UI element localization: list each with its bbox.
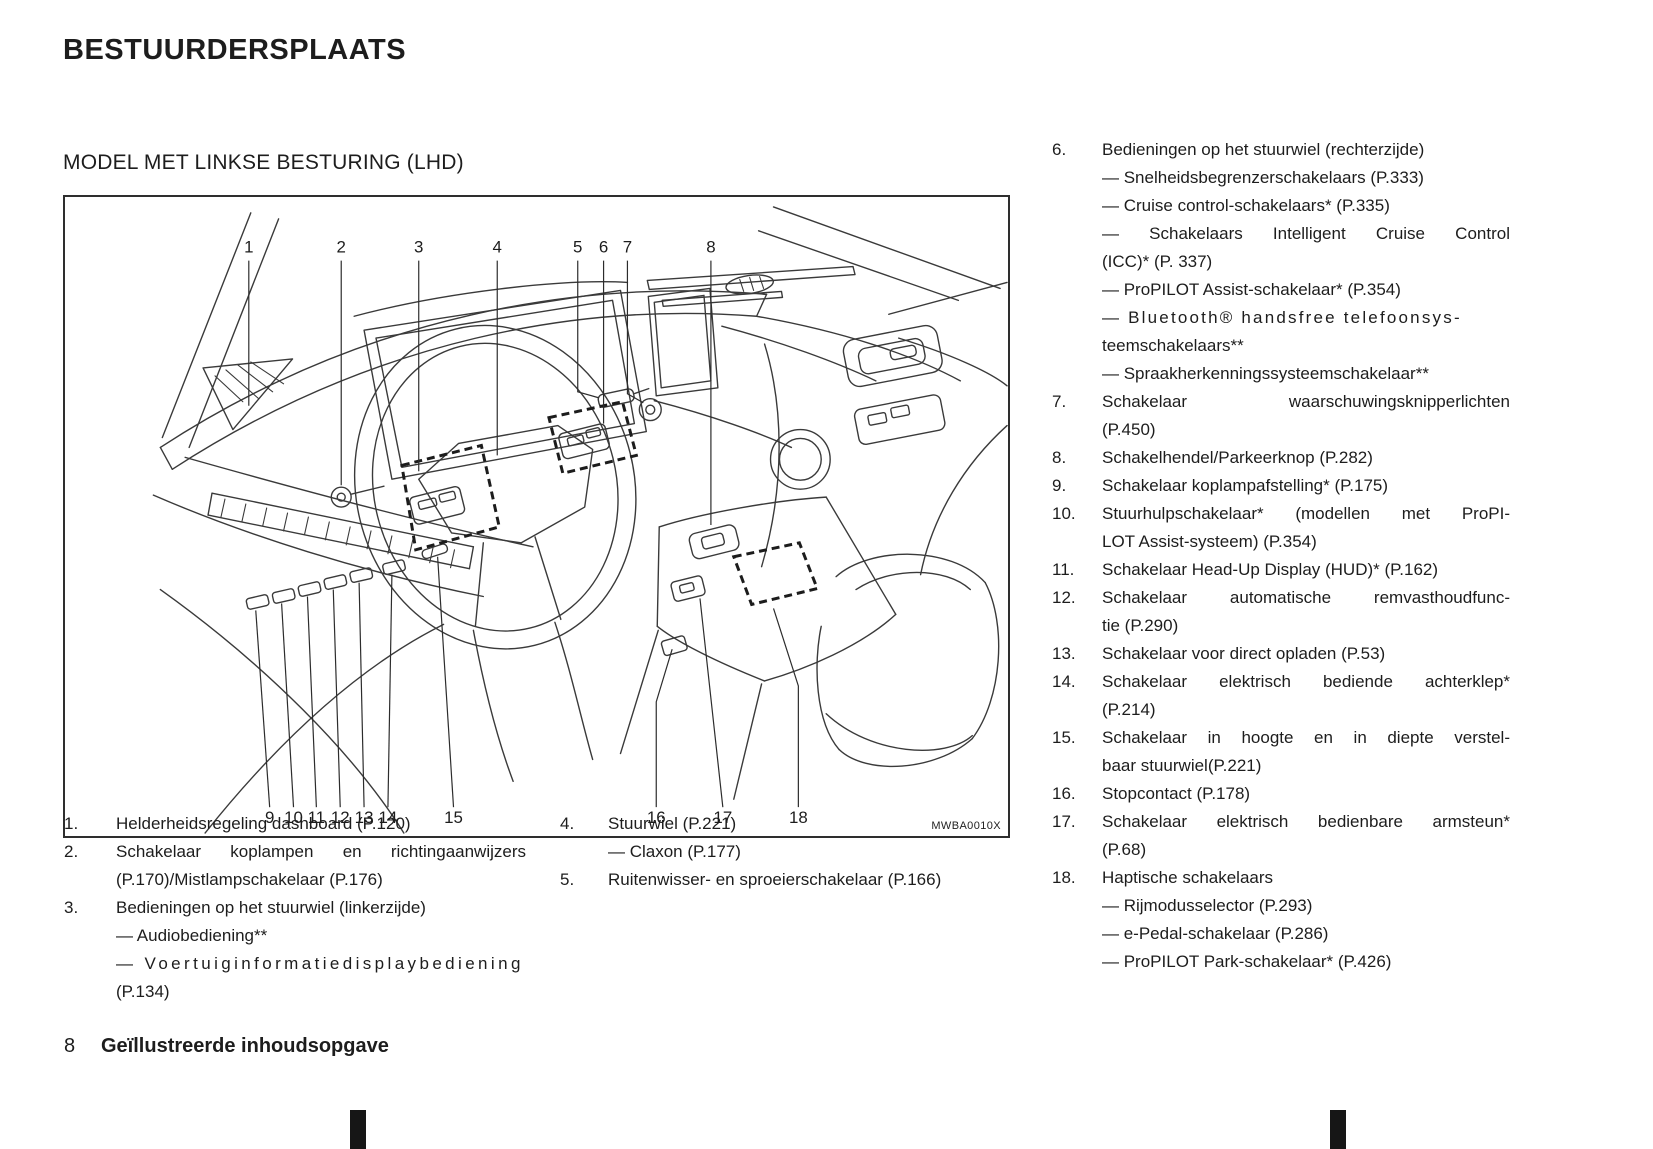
legend-line: — Schakelaars Intelligent Cruise Control [1102, 220, 1510, 248]
legend-line: — Claxon (P.177) [608, 838, 1010, 866]
legend-line: Schakelaar automatische remvasthoudfunc- [1102, 584, 1510, 612]
legend-item-7: 7. Schakelaar waarschuwingsknipperlichte… [1052, 388, 1510, 444]
svg-text:1: 1 [244, 238, 253, 257]
legend-item-16: 16. Stopcontact (P.178) [1052, 780, 1510, 808]
page-number: 8 [64, 1035, 101, 1058]
instrument-cluster [354, 282, 876, 479]
legend-line: — Cruise control-schakelaars* (P.335) [1102, 192, 1510, 220]
legend-item-11: 11. Schakelaar Head-Up Display (HUD)* (P… [1052, 556, 1510, 584]
svg-text:3: 3 [414, 238, 423, 257]
legend-item-number: 8. [1052, 444, 1102, 472]
dash-button-row [246, 559, 406, 609]
legend-item-number: 12. [1052, 584, 1102, 640]
legend-line: Schakelaar Head-Up Display (HUD)* (P.162… [1102, 556, 1510, 584]
figure-subtitle: MODEL MET LINKSE BESTURING (LHD) [63, 151, 464, 175]
legend-item-9: 9. Schakelaar koplampafstelling* (P.175) [1052, 472, 1510, 500]
legend-line: Schakelaar voor direct opladen (P.53) [1102, 640, 1510, 668]
legend-line: Schakelhendel/Parkeerknop (P.282) [1102, 444, 1510, 472]
legend-item-number: 11. [1052, 556, 1102, 584]
legend-line: (P.450) [1102, 416, 1510, 444]
legend-line: Bedieningen op het stuurwiel (linkerzijd… [116, 894, 526, 922]
legend-item-number: 9. [1052, 472, 1102, 500]
legend-item-5: 5. Ruitenwisser- en sproeierschakelaar (… [560, 866, 1010, 894]
legend-item-number: 5. [560, 866, 608, 894]
legend-item-2: 2. Schakelaar koplampen en richtingaanwi… [64, 838, 526, 894]
legend-line: (P.214) [1102, 696, 1510, 724]
gear-shifter [688, 524, 741, 561]
legend-line: Haptische schakelaars [1102, 864, 1510, 892]
legend-item-13: 13. Schakelaar voor direct opladen (P.53… [1052, 640, 1510, 668]
chapter-title: Geïllustreerde inhoudsopgave [101, 1035, 389, 1057]
legend-item-number: 4. [560, 810, 608, 866]
legend-line: — ProPILOT Park-schakelaar* (P.426) [1102, 948, 1510, 976]
legend-item-number: 13. [1052, 640, 1102, 668]
legend-line: Schakelaar elektrisch bediende achterkle… [1102, 668, 1510, 696]
legend-line: — Rijmodusselector (P.293) [1102, 892, 1510, 920]
callout-15: 15 [438, 557, 463, 827]
legend-item-number: 6. [1052, 136, 1102, 388]
legend-column-right: 6. Bedieningen op het stuurwiel (rechter… [1052, 136, 1510, 976]
legend-line: Helderheidsregeling dashboard (P.120) [116, 810, 526, 838]
legend-item-10: 10. Stuurhulpschakelaar* (modellen met P… [1052, 500, 1510, 556]
legend-column-middle: 4. Stuurwiel (P.221) — Claxon (P.177) 5.… [560, 810, 1010, 894]
callout-9: 9 [256, 610, 275, 827]
callout-18: 18 [774, 608, 808, 827]
legend-line: tie (P.290) [1102, 612, 1510, 640]
svg-text:2: 2 [337, 238, 346, 257]
callouts-top: 1 2 3 4 5 6 7 8 [244, 238, 715, 525]
callout-4: 4 [493, 238, 502, 456]
callout-12: 12 [331, 590, 350, 828]
legend-line: — ProPILOT Assist-schakelaar* (P.354) [1102, 276, 1510, 304]
callout-11: 11 [307, 596, 325, 827]
page-title: BESTUURDERSPLAATS [63, 34, 406, 67]
legend-line: Stopcontact (P.178) [1102, 780, 1510, 808]
legend-item-number: 14. [1052, 668, 1102, 724]
callout-17: 17 [700, 598, 732, 827]
legend-item-1: 1. Helderheidsregeling dashboard (P.120) [64, 810, 526, 838]
callout-10: 10 [282, 603, 303, 827]
svg-text:5: 5 [573, 238, 582, 257]
legend-item-number: 10. [1052, 500, 1102, 556]
legend-line: Stuurwiel (P.221) [608, 810, 1010, 838]
legend-line: teemschakelaars** [1102, 332, 1510, 360]
legend-item-number: 17. [1052, 808, 1102, 864]
passenger-seat [817, 554, 999, 766]
callout-13: 13 [355, 583, 374, 827]
callout-1: 1 [244, 238, 253, 406]
legend-line: Schakelaar koplampafstelling* (P.175) [1102, 472, 1510, 500]
legend-item-number: 18. [1052, 864, 1102, 976]
legend-item-number: 2. [64, 838, 116, 894]
legend-item-6: 6. Bedieningen op het stuurwiel (rechter… [1052, 136, 1510, 388]
page-footer: 8Geïllustreerde inhoudsopgave [64, 1035, 389, 1058]
legend-item-8: 8. Schakelhendel/Parkeerknop (P.282) [1052, 444, 1510, 472]
svg-text:7: 7 [623, 238, 632, 257]
legend-line: — Spraakherkenningssysteemschakelaar** [1102, 360, 1510, 388]
legend-item-number: 16. [1052, 780, 1102, 808]
door-panel [762, 323, 1007, 574]
legend-item-15: 15. Schakelaar in hoogte en in diepte ve… [1052, 724, 1510, 780]
legend-line: baar stuurwiel(P.221) [1102, 752, 1510, 780]
print-registration-mark [1330, 1110, 1346, 1149]
legend-item-17: 17. Schakelaar elektrisch bedienbare arm… [1052, 808, 1510, 864]
light-stalk-knob [331, 487, 351, 507]
legend-line: (P.134) [116, 978, 526, 1006]
dashboard-figure-frame: 1 2 3 4 5 6 7 8 9 10 11 12 13 14 15 16 1… [63, 195, 1010, 838]
power-outlet [661, 635, 688, 656]
legend-item-number: 1. [64, 810, 116, 838]
legend-line: — Bluetooth® handsfree telefoonsys- [1102, 304, 1510, 332]
callout-2: 2 [337, 238, 346, 486]
legend-line: LOT Assist-systeem) (P.354) [1102, 528, 1510, 556]
a-pillar-right [725, 207, 1007, 386]
callout-16: 16 [647, 649, 672, 827]
callouts-bottom: 9 10 11 12 13 14 15 16 17 18 [256, 557, 808, 827]
legend-column-left: 1. Helderheidsregeling dashboard (P.120)… [64, 810, 526, 1006]
svg-text:6: 6 [599, 238, 608, 257]
legend-line: Schakelaar in hoogte en in diepte verste… [1102, 724, 1510, 752]
legend-line: Ruitenwisser- en sproeierschakelaar (P.1… [608, 866, 1010, 894]
dashboard-cowl [160, 267, 855, 470]
legend-line: — e-Pedal-schakelaar (P.286) [1102, 920, 1510, 948]
legend-item-number: 7. [1052, 388, 1102, 444]
svg-text:4: 4 [493, 238, 502, 257]
legend-line: Schakelaar elektrisch bedienbare armsteu… [1102, 808, 1510, 836]
legend-line: — Snelheidsbegrenzerschakelaars (P.333) [1102, 164, 1510, 192]
legend-item-4: 4. Stuurwiel (P.221) — Claxon (P.177) [560, 810, 1010, 866]
svg-text:8: 8 [706, 238, 715, 257]
legend-line: Bedieningen op het stuurwiel (rechterzij… [1102, 136, 1510, 164]
legend-line: Schakelaar waarschuwingsknipperlichten [1102, 388, 1510, 416]
print-registration-mark [350, 1110, 366, 1149]
dashboard-diagram: 1 2 3 4 5 6 7 8 9 10 11 12 13 14 15 16 1… [65, 197, 1008, 836]
legend-line: (P.68) [1102, 836, 1510, 864]
legend-line: Stuurhulpschakelaar* (modellen met ProPI… [1102, 500, 1510, 528]
legend-line: — Voertuiginformatiedisplaybediening [116, 950, 526, 978]
legend-item-number: 15. [1052, 724, 1102, 780]
legend-line: (ICC)* (P. 337) [1102, 248, 1510, 276]
legend-item-12: 12. Schakelaar automatische remvasthoudf… [1052, 584, 1510, 640]
armrest-switch [670, 575, 706, 602]
legend-item-number: 3. [64, 894, 116, 1006]
legend-line: Schakelaar koplampen en richtingaanwijze… [116, 838, 526, 866]
legend-item-3: 3. Bedieningen op het stuurwiel (linkerz… [64, 894, 526, 1006]
legend-line: (P.170)/Mistlampschakelaar (P.176) [116, 866, 526, 894]
legend-item-18: 18. Haptische schakelaars — Rijmodussele… [1052, 864, 1510, 976]
legend-item-14: 14. Schakelaar elektrisch bediende achte… [1052, 668, 1510, 724]
center-console [620, 497, 895, 799]
tilt-lever [421, 543, 448, 559]
callout-14: 14 [379, 575, 398, 827]
legend-line: — Audiobediening** [116, 922, 526, 950]
